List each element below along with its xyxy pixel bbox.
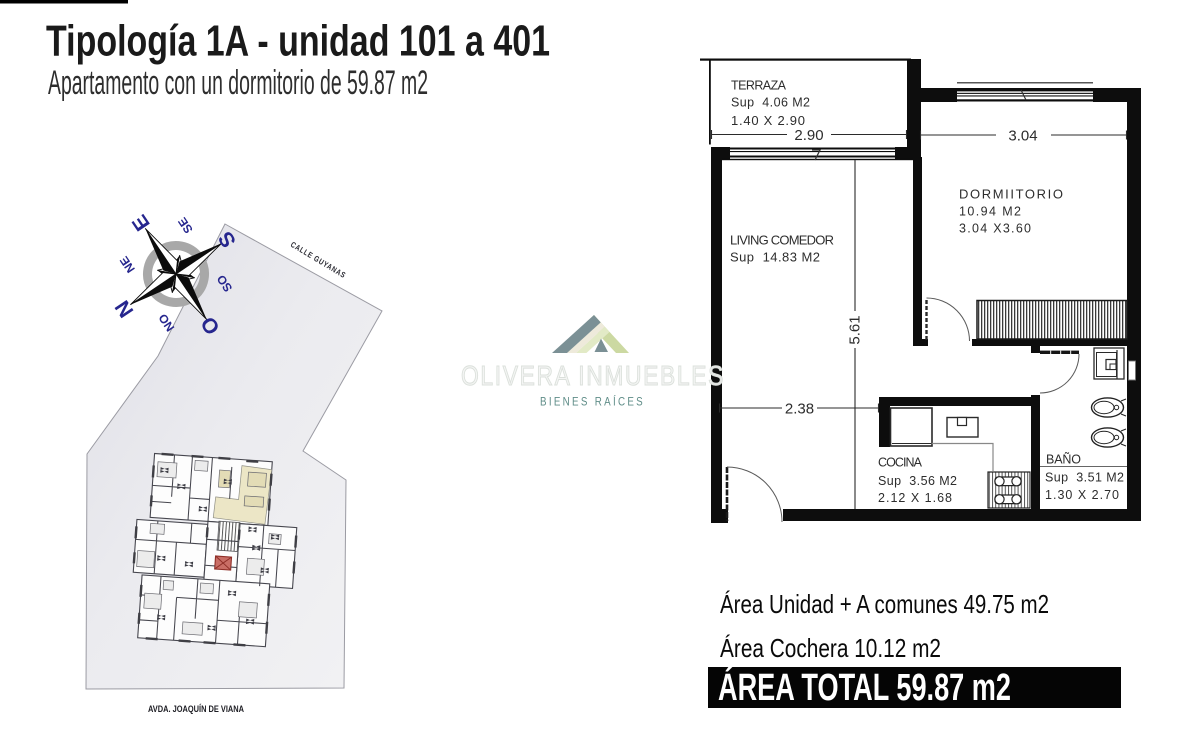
svg-text:3.04: 3.04: [1008, 128, 1037, 145]
svg-text:3.04 X3.60: 3.04 X3.60: [959, 222, 1031, 236]
svg-text:Sup 4.06 M2: Sup 4.06 M2: [731, 96, 810, 110]
svg-text:Sup 3.51 M2: Sup 3.51 M2: [1045, 471, 1124, 485]
svg-text:1.40 X 2.90: 1.40 X 2.90: [731, 113, 805, 128]
svg-text:ÁREA TOTAL 59.87 m2: ÁREA TOTAL 59.87 m2: [718, 665, 1011, 709]
svg-text:Sup 3.56 M2: Sup 3.56 M2: [878, 474, 957, 488]
svg-text:TERRAZA: TERRAZA: [731, 79, 787, 93]
svg-text:Tipología 1A - unidad 101 a 40: Tipología 1A - unidad 101 a 401: [46, 17, 550, 66]
svg-text:Sup 14.83 M2: Sup 14.83 M2: [730, 250, 820, 265]
svg-text:Apartamento con un dormitorio: Apartamento con un dormitorio de 59.87 m…: [48, 64, 428, 102]
svg-text:COCINA: COCINA: [878, 456, 923, 470]
svg-text:OLIVERA INMUEBLES: OLIVERA INMUEBLES: [461, 360, 725, 391]
svg-text:2.38: 2.38: [785, 401, 814, 418]
svg-text:BAÑO: BAÑO: [1046, 453, 1081, 467]
svg-text:N: N: [111, 296, 139, 321]
svg-text:LIVING COMEDOR: LIVING COMEDOR: [730, 233, 834, 248]
svg-text:AVDA. JOAQUÍN DE VIANA: AVDA. JOAQUÍN DE VIANA: [148, 704, 244, 715]
svg-text:E: E: [128, 210, 155, 234]
svg-text:2.90: 2.90: [794, 127, 823, 144]
svg-text:1.30 X 2.70: 1.30 X 2.70: [1045, 488, 1119, 502]
svg-text:Área Cochera 10.12 m2: Área Cochera 10.12 m2: [720, 633, 941, 663]
svg-text:2.12 X 1.68: 2.12 X 1.68: [878, 491, 952, 505]
svg-text:NE: NE: [117, 254, 138, 276]
svg-text:SE: SE: [175, 215, 196, 236]
svg-text:Área Unidad + A comunes 49.75: Área Unidad + A comunes 49.75 m2: [720, 589, 1049, 619]
svg-text:BIENES RAÍCES: BIENES RAÍCES: [540, 394, 645, 409]
svg-text:10.94 M2: 10.94 M2: [959, 205, 1021, 219]
svg-text:5.61: 5.61: [847, 315, 864, 344]
svg-text:DORMIITORIO: DORMIITORIO: [959, 187, 1063, 202]
